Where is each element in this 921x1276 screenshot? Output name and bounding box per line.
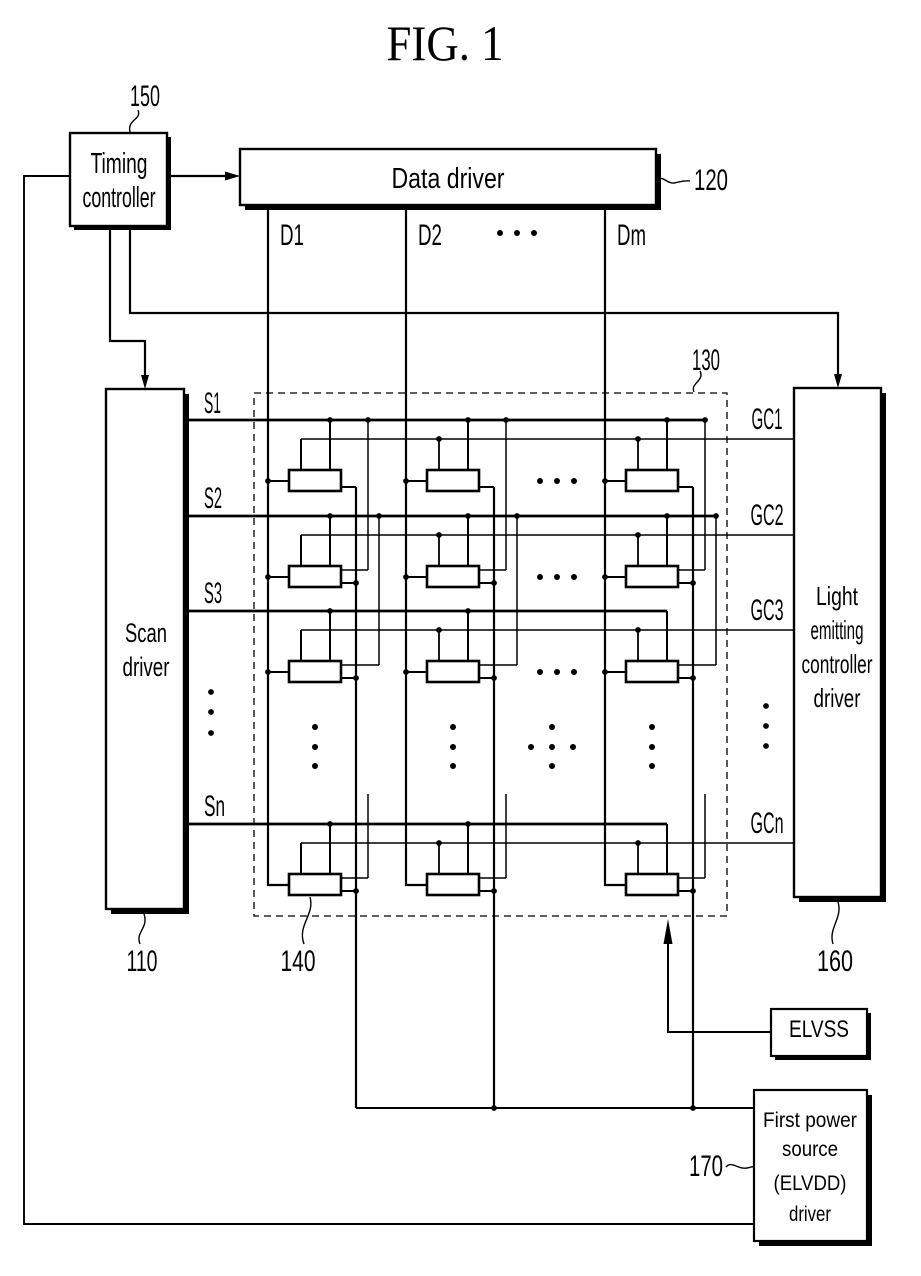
svg-text:GC1: GC1 [752, 403, 783, 436]
svg-text:ELVSS: ELVSS [789, 1016, 849, 1043]
svg-text:D1: D1 [280, 219, 304, 252]
svg-text:110: 110 [127, 945, 158, 978]
svg-text:S3: S3 [204, 577, 222, 610]
svg-text:130: 130 [692, 344, 720, 377]
svg-text:GC3: GC3 [751, 594, 784, 627]
svg-text:120: 120 [694, 164, 728, 197]
svg-text:S2: S2 [204, 482, 222, 515]
svg-text:160: 160 [817, 945, 853, 978]
svg-text:Data driver: Data driver [392, 163, 505, 195]
svg-text:Light: Light [816, 581, 859, 611]
svg-text:driver: driver [789, 1203, 831, 1226]
svg-text:170: 170 [689, 1150, 723, 1183]
svg-text:controller: controller [83, 182, 156, 214]
svg-text:150: 150 [130, 80, 160, 113]
svg-text:controller: controller [802, 649, 873, 679]
svg-text:(ELVDD): (ELVDD) [774, 1172, 847, 1195]
svg-text:GCn: GCn [751, 807, 784, 840]
svg-text:First power: First power [763, 1109, 857, 1132]
svg-text:source: source [782, 1138, 838, 1161]
svg-text:GC2: GC2 [751, 499, 784, 532]
svg-text:Timing: Timing [91, 148, 148, 180]
svg-text:140: 140 [281, 945, 316, 978]
svg-text:emitting: emitting [811, 615, 864, 645]
svg-text:driver: driver [123, 652, 170, 682]
svg-text:Dm: Dm [617, 219, 646, 252]
svg-text:Scan: Scan [125, 618, 167, 648]
svg-text:FIG. 1: FIG. 1 [387, 15, 504, 71]
svg-text:driver: driver [814, 683, 861, 713]
svg-text:D2: D2 [418, 219, 442, 252]
svg-text:Sn: Sn [204, 790, 225, 823]
svg-text:S1: S1 [204, 387, 221, 420]
